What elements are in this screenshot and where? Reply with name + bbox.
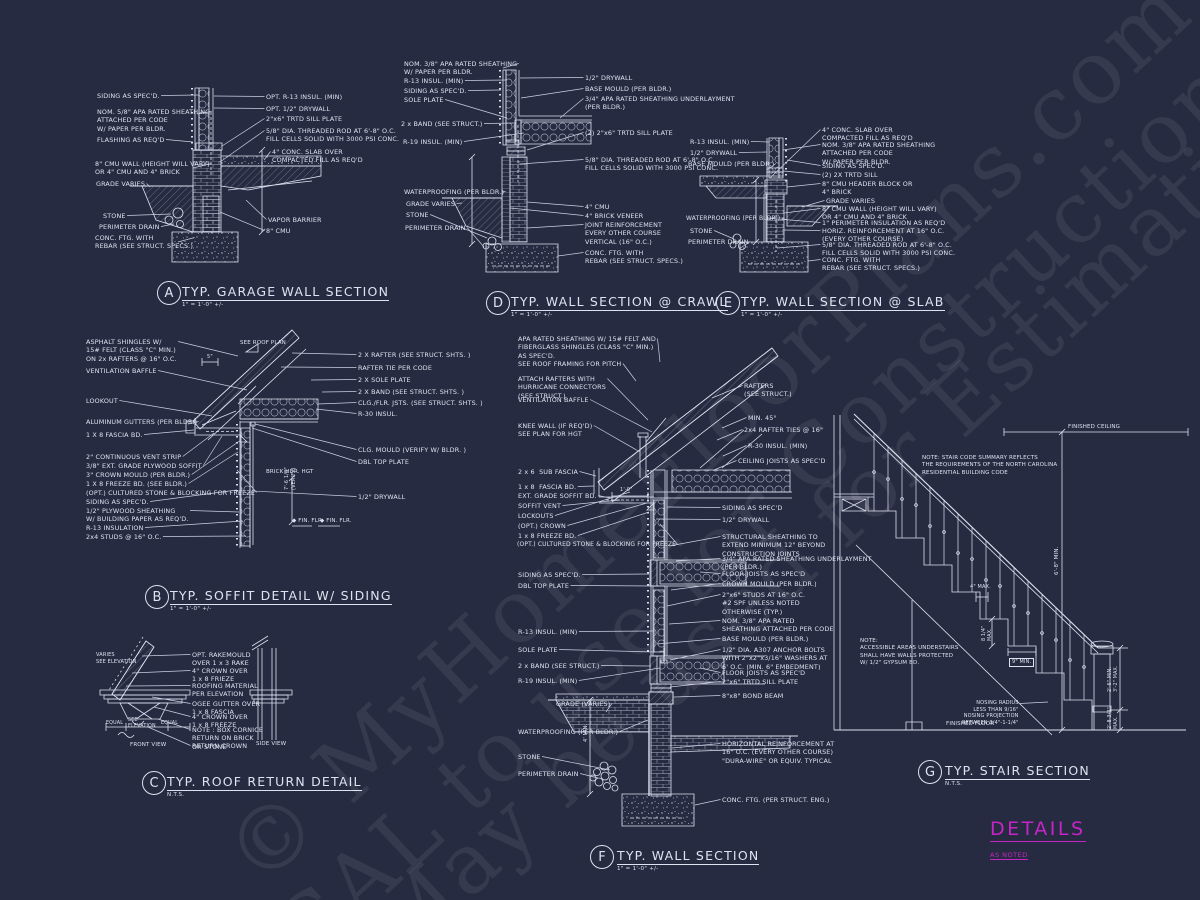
leader-line bbox=[722, 418, 747, 429]
leader-line bbox=[712, 386, 743, 399]
leader-line bbox=[520, 160, 584, 165]
leader-line bbox=[669, 537, 721, 547]
leader-line bbox=[787, 184, 821, 188]
leader-line bbox=[189, 452, 238, 484]
leader-line bbox=[672, 744, 721, 749]
leader-line bbox=[751, 142, 769, 143]
sheet-title: DETAILS bbox=[990, 818, 1086, 842]
leader-line bbox=[527, 225, 584, 229]
leader-line bbox=[220, 212, 265, 231]
leader-line bbox=[464, 133, 524, 142]
leader-line bbox=[527, 202, 584, 207]
leader-line bbox=[161, 224, 174, 227]
leader-line bbox=[188, 422, 199, 425]
leader-line bbox=[717, 430, 743, 441]
leader-line bbox=[567, 503, 647, 526]
leader-line bbox=[606, 704, 612, 713]
leader-line bbox=[264, 152, 271, 161]
leader-line bbox=[163, 536, 246, 537]
leader-line bbox=[468, 90, 501, 91]
leader-line bbox=[671, 584, 721, 591]
leader-line bbox=[503, 64, 519, 69]
leader-line bbox=[558, 253, 584, 257]
leader-line bbox=[580, 774, 598, 779]
leader-line bbox=[311, 380, 357, 381]
leader-line bbox=[166, 140, 193, 143]
leader-line bbox=[237, 470, 257, 493]
leader-line bbox=[142, 655, 191, 657]
leader-line bbox=[714, 461, 737, 471]
leader-line bbox=[527, 133, 584, 151]
leader-line bbox=[802, 201, 825, 208]
leader-line bbox=[1020, 702, 1048, 704]
leader-line bbox=[700, 668, 721, 673]
leader-line bbox=[252, 428, 357, 462]
leader-line bbox=[594, 426, 640, 453]
leader-line bbox=[292, 353, 357, 355]
leader-line bbox=[502, 192, 506, 193]
leader-line bbox=[467, 228, 484, 248]
leader-line bbox=[220, 131, 265, 163]
leader-line bbox=[670, 682, 721, 688]
leader-line bbox=[193, 164, 211, 169]
leader-line bbox=[660, 524, 678, 545]
leader-line bbox=[190, 511, 239, 513]
leader-line bbox=[255, 424, 357, 450]
leader-line bbox=[656, 519, 721, 520]
leader-line bbox=[214, 108, 265, 109]
leader-line bbox=[808, 260, 821, 262]
leader-line bbox=[739, 152, 767, 153]
leader-line bbox=[676, 559, 721, 562]
leader-line bbox=[316, 409, 357, 414]
leader-line bbox=[601, 666, 651, 667]
leader-line bbox=[670, 650, 721, 661]
leader-line bbox=[674, 696, 721, 698]
leader-line bbox=[158, 719, 191, 730]
leader-line bbox=[555, 492, 630, 516]
leader-line bbox=[578, 512, 649, 536]
leader-line bbox=[542, 757, 610, 771]
leader-line bbox=[154, 707, 191, 717]
leader-line bbox=[571, 586, 653, 587]
leader-line bbox=[144, 430, 194, 435]
leader-line bbox=[318, 403, 357, 405]
leader-line bbox=[700, 572, 721, 574]
leader-line bbox=[723, 446, 747, 457]
leader-line bbox=[253, 491, 357, 497]
leader-line bbox=[178, 238, 195, 243]
leader-line bbox=[657, 639, 721, 645]
leader-line bbox=[197, 112, 212, 115]
leader-line bbox=[150, 490, 237, 502]
leader-line bbox=[777, 245, 821, 249]
leader-line bbox=[445, 100, 507, 119]
leader-line bbox=[787, 160, 821, 166]
leader-line bbox=[767, 164, 776, 171]
leader-line bbox=[203, 436, 222, 466]
leader-line bbox=[520, 78, 584, 79]
leader-line bbox=[766, 218, 821, 223]
leader-line bbox=[607, 379, 648, 421]
leader-line bbox=[582, 574, 649, 575]
leader-line bbox=[214, 96, 265, 97]
leader-line bbox=[579, 472, 596, 477]
leader-line bbox=[127, 214, 171, 216]
leader-line bbox=[560, 99, 584, 119]
leader-lines bbox=[0, 0, 1200, 900]
leader-line bbox=[559, 650, 654, 653]
leader-line bbox=[152, 697, 191, 704]
leader-line bbox=[598, 496, 610, 499]
leader-line bbox=[563, 500, 620, 506]
leader-line bbox=[510, 208, 584, 216]
leader-line bbox=[322, 392, 357, 393]
leader-line bbox=[145, 521, 243, 528]
leader-line bbox=[161, 95, 199, 96]
leader-line bbox=[126, 686, 191, 687]
leader-line bbox=[579, 668, 660, 681]
leader-line bbox=[430, 215, 487, 239]
leader-line bbox=[158, 371, 247, 391]
leader-line bbox=[281, 367, 357, 368]
leader-line bbox=[222, 119, 265, 147]
leader-line bbox=[669, 621, 721, 625]
sheet-titleblock: DETAILS AS NOTED bbox=[990, 818, 1086, 861]
leader-line bbox=[183, 433, 214, 457]
leader-line bbox=[178, 342, 238, 357]
leader-line bbox=[132, 671, 191, 674]
leader-line bbox=[590, 400, 652, 433]
leader-line bbox=[782, 230, 821, 231]
sheet-scale-note: AS NOTED bbox=[990, 851, 1028, 860]
leader-line bbox=[484, 123, 516, 124]
leader-line bbox=[667, 507, 721, 508]
leader-line bbox=[770, 130, 821, 179]
leader-line bbox=[246, 200, 267, 220]
leader-line bbox=[579, 631, 654, 632]
leader-line bbox=[714, 231, 734, 240]
leader-line bbox=[667, 595, 721, 607]
leader-line bbox=[695, 800, 721, 806]
leader-line bbox=[657, 339, 660, 363]
leader-line bbox=[119, 401, 212, 417]
sheet-canvas: SIDING AS SPEC'D.NOM. 5/8" APA RATED SHE… bbox=[0, 0, 1200, 900]
leader-line bbox=[457, 203, 462, 204]
leader-line bbox=[578, 486, 594, 487]
leader-line bbox=[783, 171, 821, 175]
leader-line bbox=[620, 720, 648, 732]
leader-line bbox=[148, 727, 191, 746]
leader-line bbox=[784, 209, 821, 214]
leader-line bbox=[521, 89, 584, 99]
leader-line bbox=[465, 80, 507, 81]
leader-line bbox=[783, 145, 821, 151]
leader-line bbox=[623, 364, 636, 382]
leader-line bbox=[147, 184, 150, 188]
leader-line bbox=[739, 242, 750, 250]
